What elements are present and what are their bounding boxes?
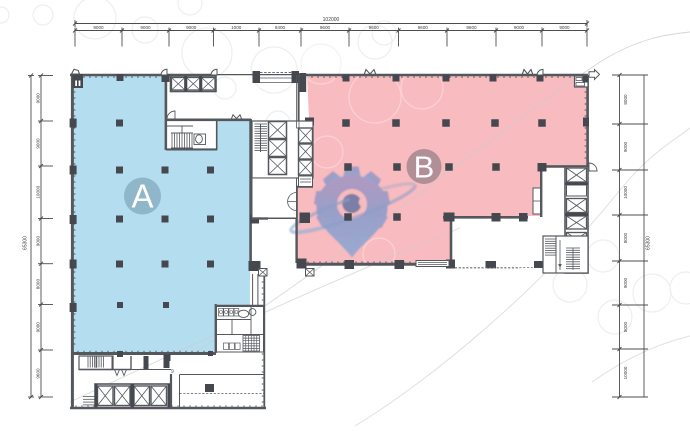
svg-text:9000: 9000	[559, 25, 570, 30]
svg-text:65300: 65300	[646, 236, 652, 250]
svg-text:8000: 8000	[36, 279, 41, 290]
svg-text:102000: 102000	[323, 17, 340, 23]
svg-text:9000: 9000	[36, 236, 41, 247]
svg-text:9000: 9000	[93, 25, 104, 30]
svg-text:B: B	[414, 150, 435, 185]
svg-text:9000: 9000	[36, 322, 41, 333]
svg-text:9: 9	[171, 369, 174, 375]
svg-text:9000: 9000	[623, 277, 628, 288]
svg-text:9600: 9600	[466, 25, 477, 30]
svg-text:9600: 9600	[418, 25, 429, 30]
svg-text:10000: 10000	[623, 186, 628, 199]
svg-text:9600: 9600	[369, 25, 380, 30]
svg-text:8000: 8000	[623, 94, 628, 105]
svg-text:9000: 9000	[623, 141, 628, 152]
svg-text:8400: 8400	[275, 25, 286, 30]
svg-text:A: A	[131, 178, 153, 215]
svg-text:9000: 9000	[36, 93, 41, 104]
svg-text:9000: 9000	[186, 25, 197, 30]
svg-text:9600: 9600	[320, 25, 331, 30]
svg-text:9000: 9000	[514, 25, 525, 30]
svg-text:8000: 8000	[623, 232, 628, 243]
svg-text:9000: 9000	[36, 138, 41, 149]
svg-text:10000: 10000	[623, 366, 628, 379]
svg-text:9600: 9600	[36, 368, 41, 379]
svg-text:9000: 9000	[140, 25, 151, 30]
svg-text:1000: 1000	[231, 25, 242, 30]
svg-text:8000: 8000	[623, 321, 628, 332]
svg-text:10000: 10000	[36, 185, 41, 198]
svg-text:65300: 65300	[23, 236, 29, 250]
